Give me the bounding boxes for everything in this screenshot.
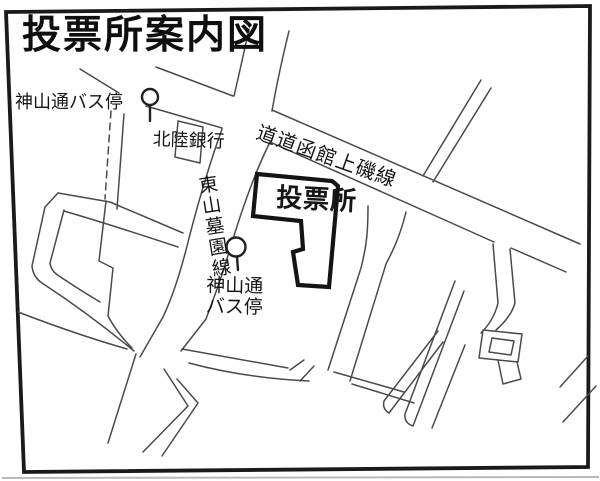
- road-top-right-line: [272, 31, 289, 111]
- road-main-lower-3: [511, 248, 566, 272]
- page-edge-line: [2, 477, 599, 478]
- road-nw-lower: [18, 312, 127, 349]
- map-title: 投票所案内図: [22, 14, 268, 58]
- bus-stop-2-label: 神山通 バス停: [206, 276, 264, 319]
- road-zigzag: [99, 201, 132, 348]
- bus-stop-pole: [237, 257, 238, 270]
- road-main-lower-1: [146, 106, 222, 128]
- lane-corner-2: [563, 386, 596, 422]
- lane-corner-1: [560, 356, 588, 387]
- road-right-branch-2: [496, 249, 515, 330]
- bus-stop-sign: [227, 238, 246, 257]
- road-upper-right-1: [423, 80, 481, 176]
- loop-road-stub: [498, 360, 521, 384]
- road-vertical-pair-solid: [117, 114, 124, 209]
- bus-stop-1-label: 神山通バス停: [15, 93, 123, 113]
- block-top-upper: [58, 193, 183, 233]
- road-sw-exit: [108, 354, 136, 443]
- map-border: [6, 6, 590, 472]
- block-top-lower: [64, 211, 178, 247]
- road-vertical-pair-dashed: [105, 111, 111, 199]
- polling-place-guide-map: 投票所案内図 神山通バス停 北陸銀行 道道函館上磯線 東山墓園線 投票所 神山通…: [0, 0, 600, 481]
- road-wedge-1: [290, 360, 304, 370]
- lane-extra: [432, 345, 465, 428]
- polling-place-label: 投票所: [275, 184, 357, 217]
- road-main-upper-1: [156, 67, 233, 96]
- loop-road-inner: [489, 338, 514, 355]
- road-bottom-lower: [189, 363, 309, 381]
- bank-label: 北陸銀行: [152, 130, 225, 153]
- bus-stop-sign: [142, 89, 158, 105]
- road-fork-inner: [162, 379, 198, 456]
- map-drawing: [0, 0, 600, 481]
- leader-line-bus-stop-1: [80, 69, 119, 93]
- road-polling-east-2: [350, 212, 406, 381]
- block-left-inner: [50, 210, 100, 302]
- road-fork-outer: [143, 369, 188, 452]
- road-upper-right-2: [433, 88, 491, 182]
- bus-stop-icon-1: [142, 89, 158, 121]
- road-right-branch-1: [481, 244, 498, 333]
- loop-road-outer: [479, 330, 522, 362]
- road-wedge-2: [300, 366, 314, 381]
